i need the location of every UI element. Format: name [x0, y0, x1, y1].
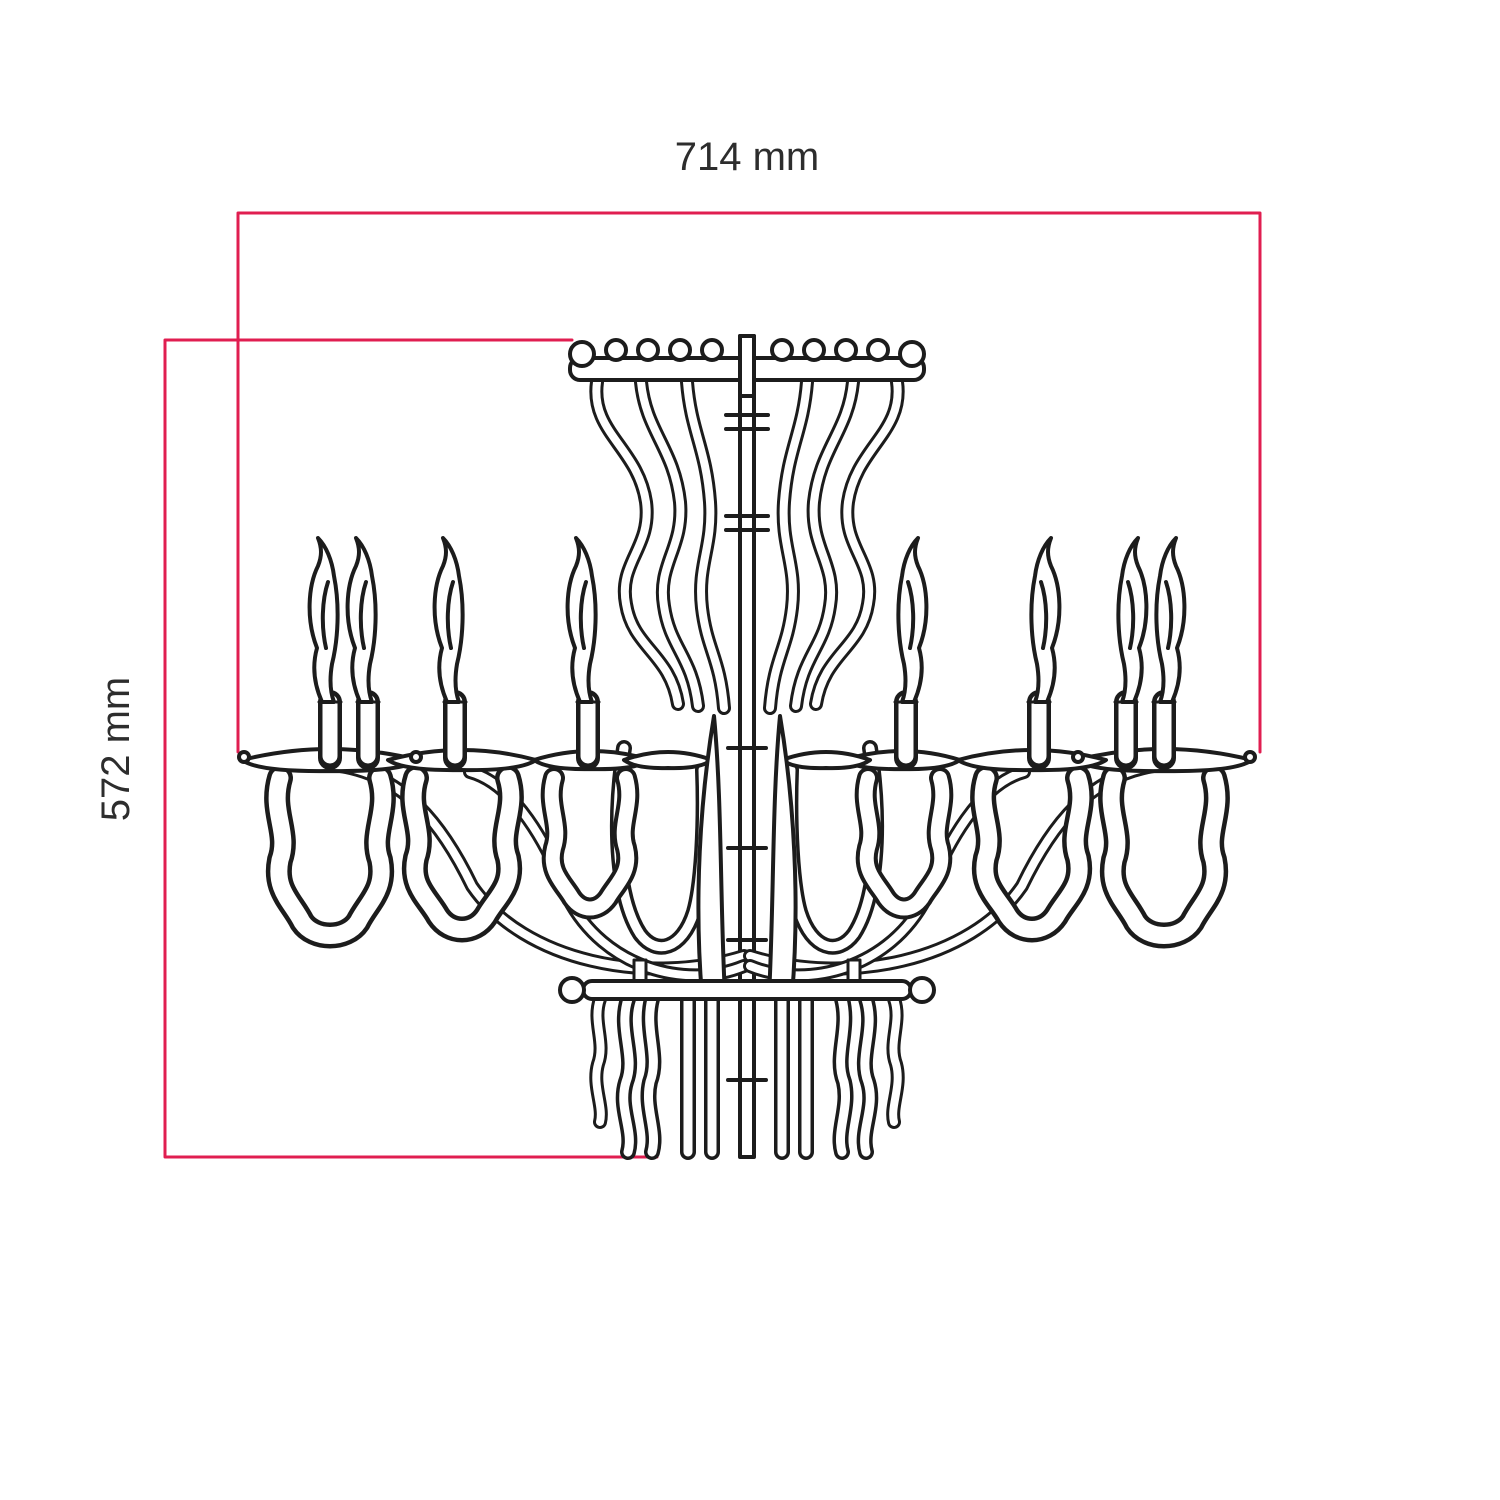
chandelier-left-half	[239, 382, 744, 1152]
chandelier-technical-drawing	[0, 0, 1500, 1500]
stem-top	[740, 336, 754, 396]
drawing-canvas: 714 mm 572 mm	[0, 0, 1500, 1500]
chandelier	[239, 336, 1255, 1157]
chandelier-right-half	[750, 382, 1255, 1152]
lower-ring-bar	[583, 981, 911, 999]
ring-bar-left-knob	[560, 978, 584, 1002]
height-dimension-label: 572 mm	[93, 667, 139, 831]
ring-bar-right-knob	[910, 978, 934, 1002]
width-dimension-label: 714 mm	[640, 134, 854, 180]
